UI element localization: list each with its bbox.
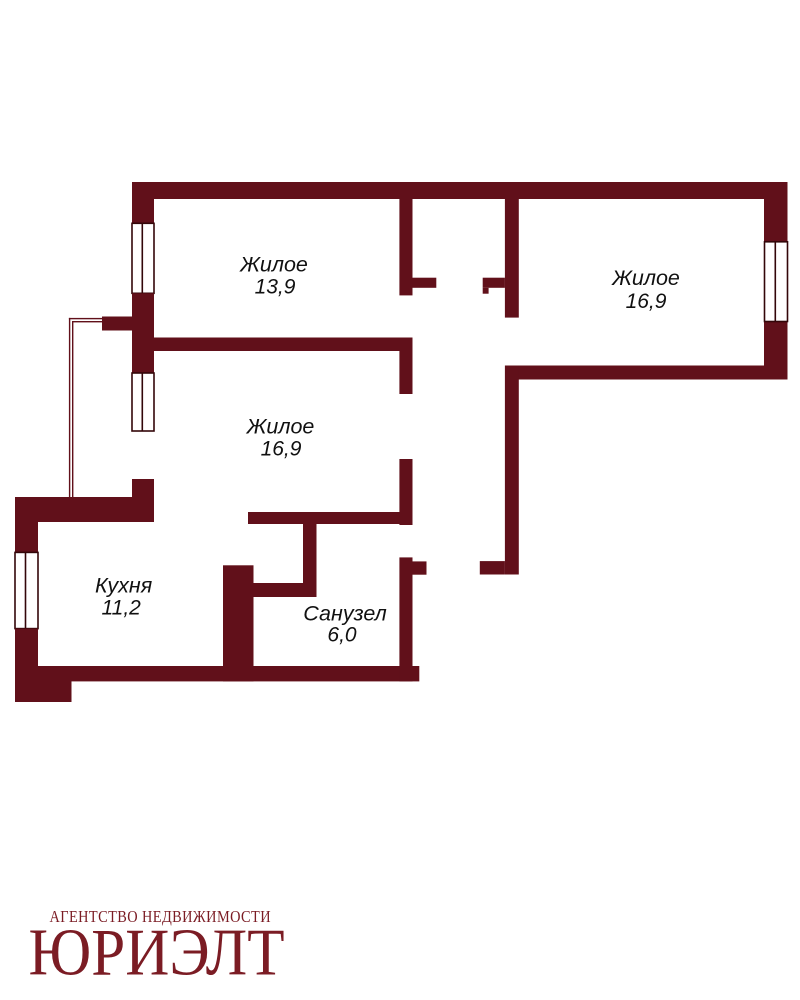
svg-text:ЮРИЭЛТ: ЮРИЭЛТ xyxy=(29,915,285,990)
svg-text:Санузел: Санузел xyxy=(303,602,386,626)
svg-text:Кухня: Кухня xyxy=(95,574,153,598)
svg-text:11,2: 11,2 xyxy=(102,597,142,620)
svg-text:Жилое: Жилое xyxy=(246,414,315,438)
svg-text:6,0: 6,0 xyxy=(327,624,357,647)
svg-text:Жилое: Жилое xyxy=(239,252,308,276)
svg-text:13,9: 13,9 xyxy=(255,276,296,299)
svg-text:16,9: 16,9 xyxy=(261,437,302,460)
svg-text:Жилое: Жилое xyxy=(611,266,680,290)
svg-text:16,9: 16,9 xyxy=(626,290,667,313)
